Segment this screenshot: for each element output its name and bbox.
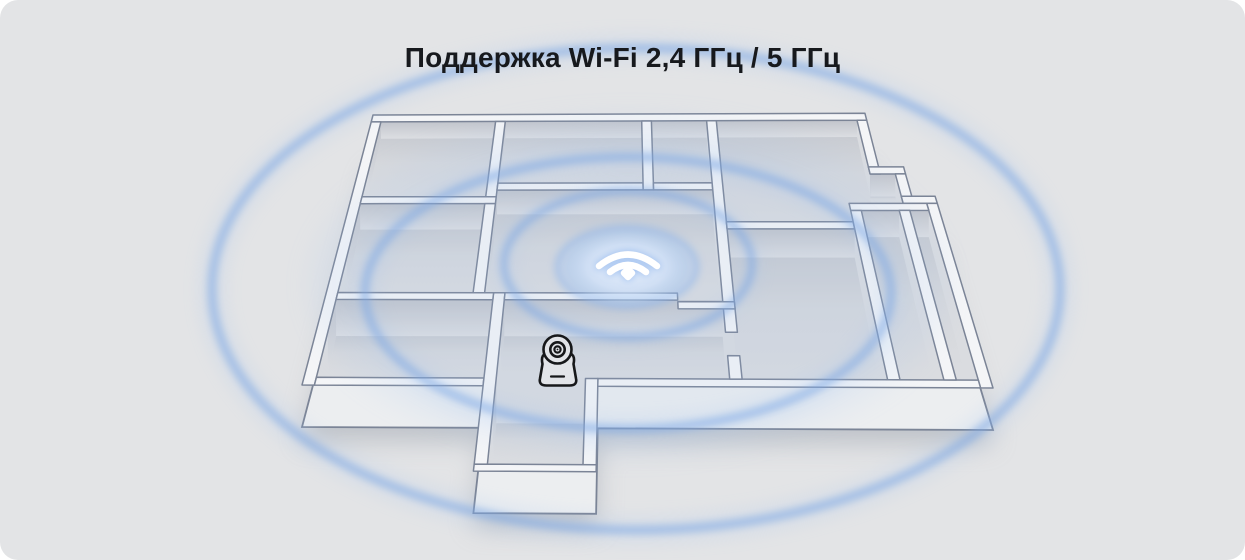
page-title: Поддержка Wi-Fi 2,4 ГГц / 5 ГГц [0, 42, 1245, 74]
floorplan-illustration [0, 0, 1245, 560]
wifi-coverage-rings [212, 48, 1060, 530]
promo-card: Поддержка Wi-Fi 2,4 ГГц / 5 ГГц [0, 0, 1245, 560]
camera-icon [540, 336, 576, 386]
card: Поддержка Wi-Fi 2,4 ГГц / 5 ГГц [0, 0, 1245, 560]
